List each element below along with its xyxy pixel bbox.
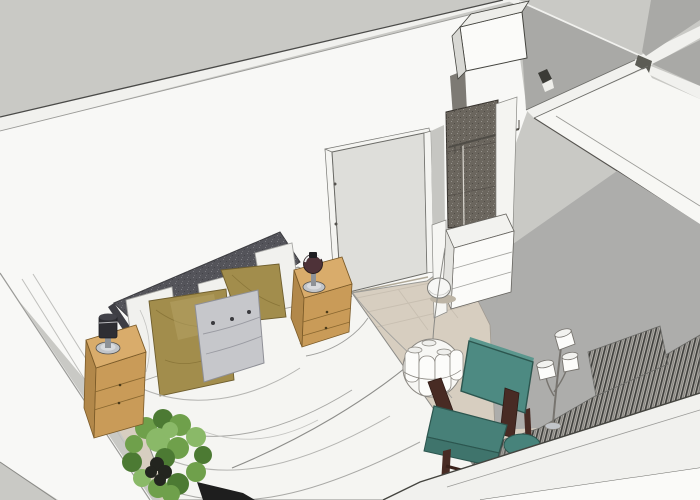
- drawer-knob: [118, 402, 121, 405]
- drawer-knob: [119, 384, 122, 387]
- drawer-knob: [325, 327, 328, 330]
- door-hinge-2: [335, 223, 338, 226]
- pillow-button-2: [230, 317, 234, 321]
- pendant-cylinder-top: [422, 340, 436, 346]
- niche-side-board-right: [496, 97, 517, 228]
- pendant-cylinder-top: [437, 349, 451, 355]
- room-render: [0, 0, 700, 500]
- plant-leaf: [194, 446, 212, 464]
- plant-pot-berry: [154, 474, 166, 486]
- pillow-button-3: [247, 310, 251, 314]
- plant-leaf: [162, 422, 178, 438]
- door-hinge-1: [334, 183, 337, 186]
- plant-leaf: [186, 427, 206, 447]
- plant-leaf: [125, 435, 143, 453]
- lamp-head-top: [99, 314, 117, 321]
- pillow-button-1: [211, 321, 215, 325]
- lamp-cap: [309, 252, 317, 258]
- pendant-cylinder-top: [408, 347, 422, 353]
- wardrobe-panel-texture: [446, 100, 498, 228]
- lamp-stem: [311, 272, 316, 286]
- floor-lamp-base: [545, 423, 561, 430]
- plant-pot-berry: [145, 466, 157, 478]
- plant-leaf: [186, 462, 206, 482]
- plant-leaf: [122, 452, 142, 472]
- table-lamp-left: [96, 314, 120, 355]
- drawer-knob: [326, 311, 329, 314]
